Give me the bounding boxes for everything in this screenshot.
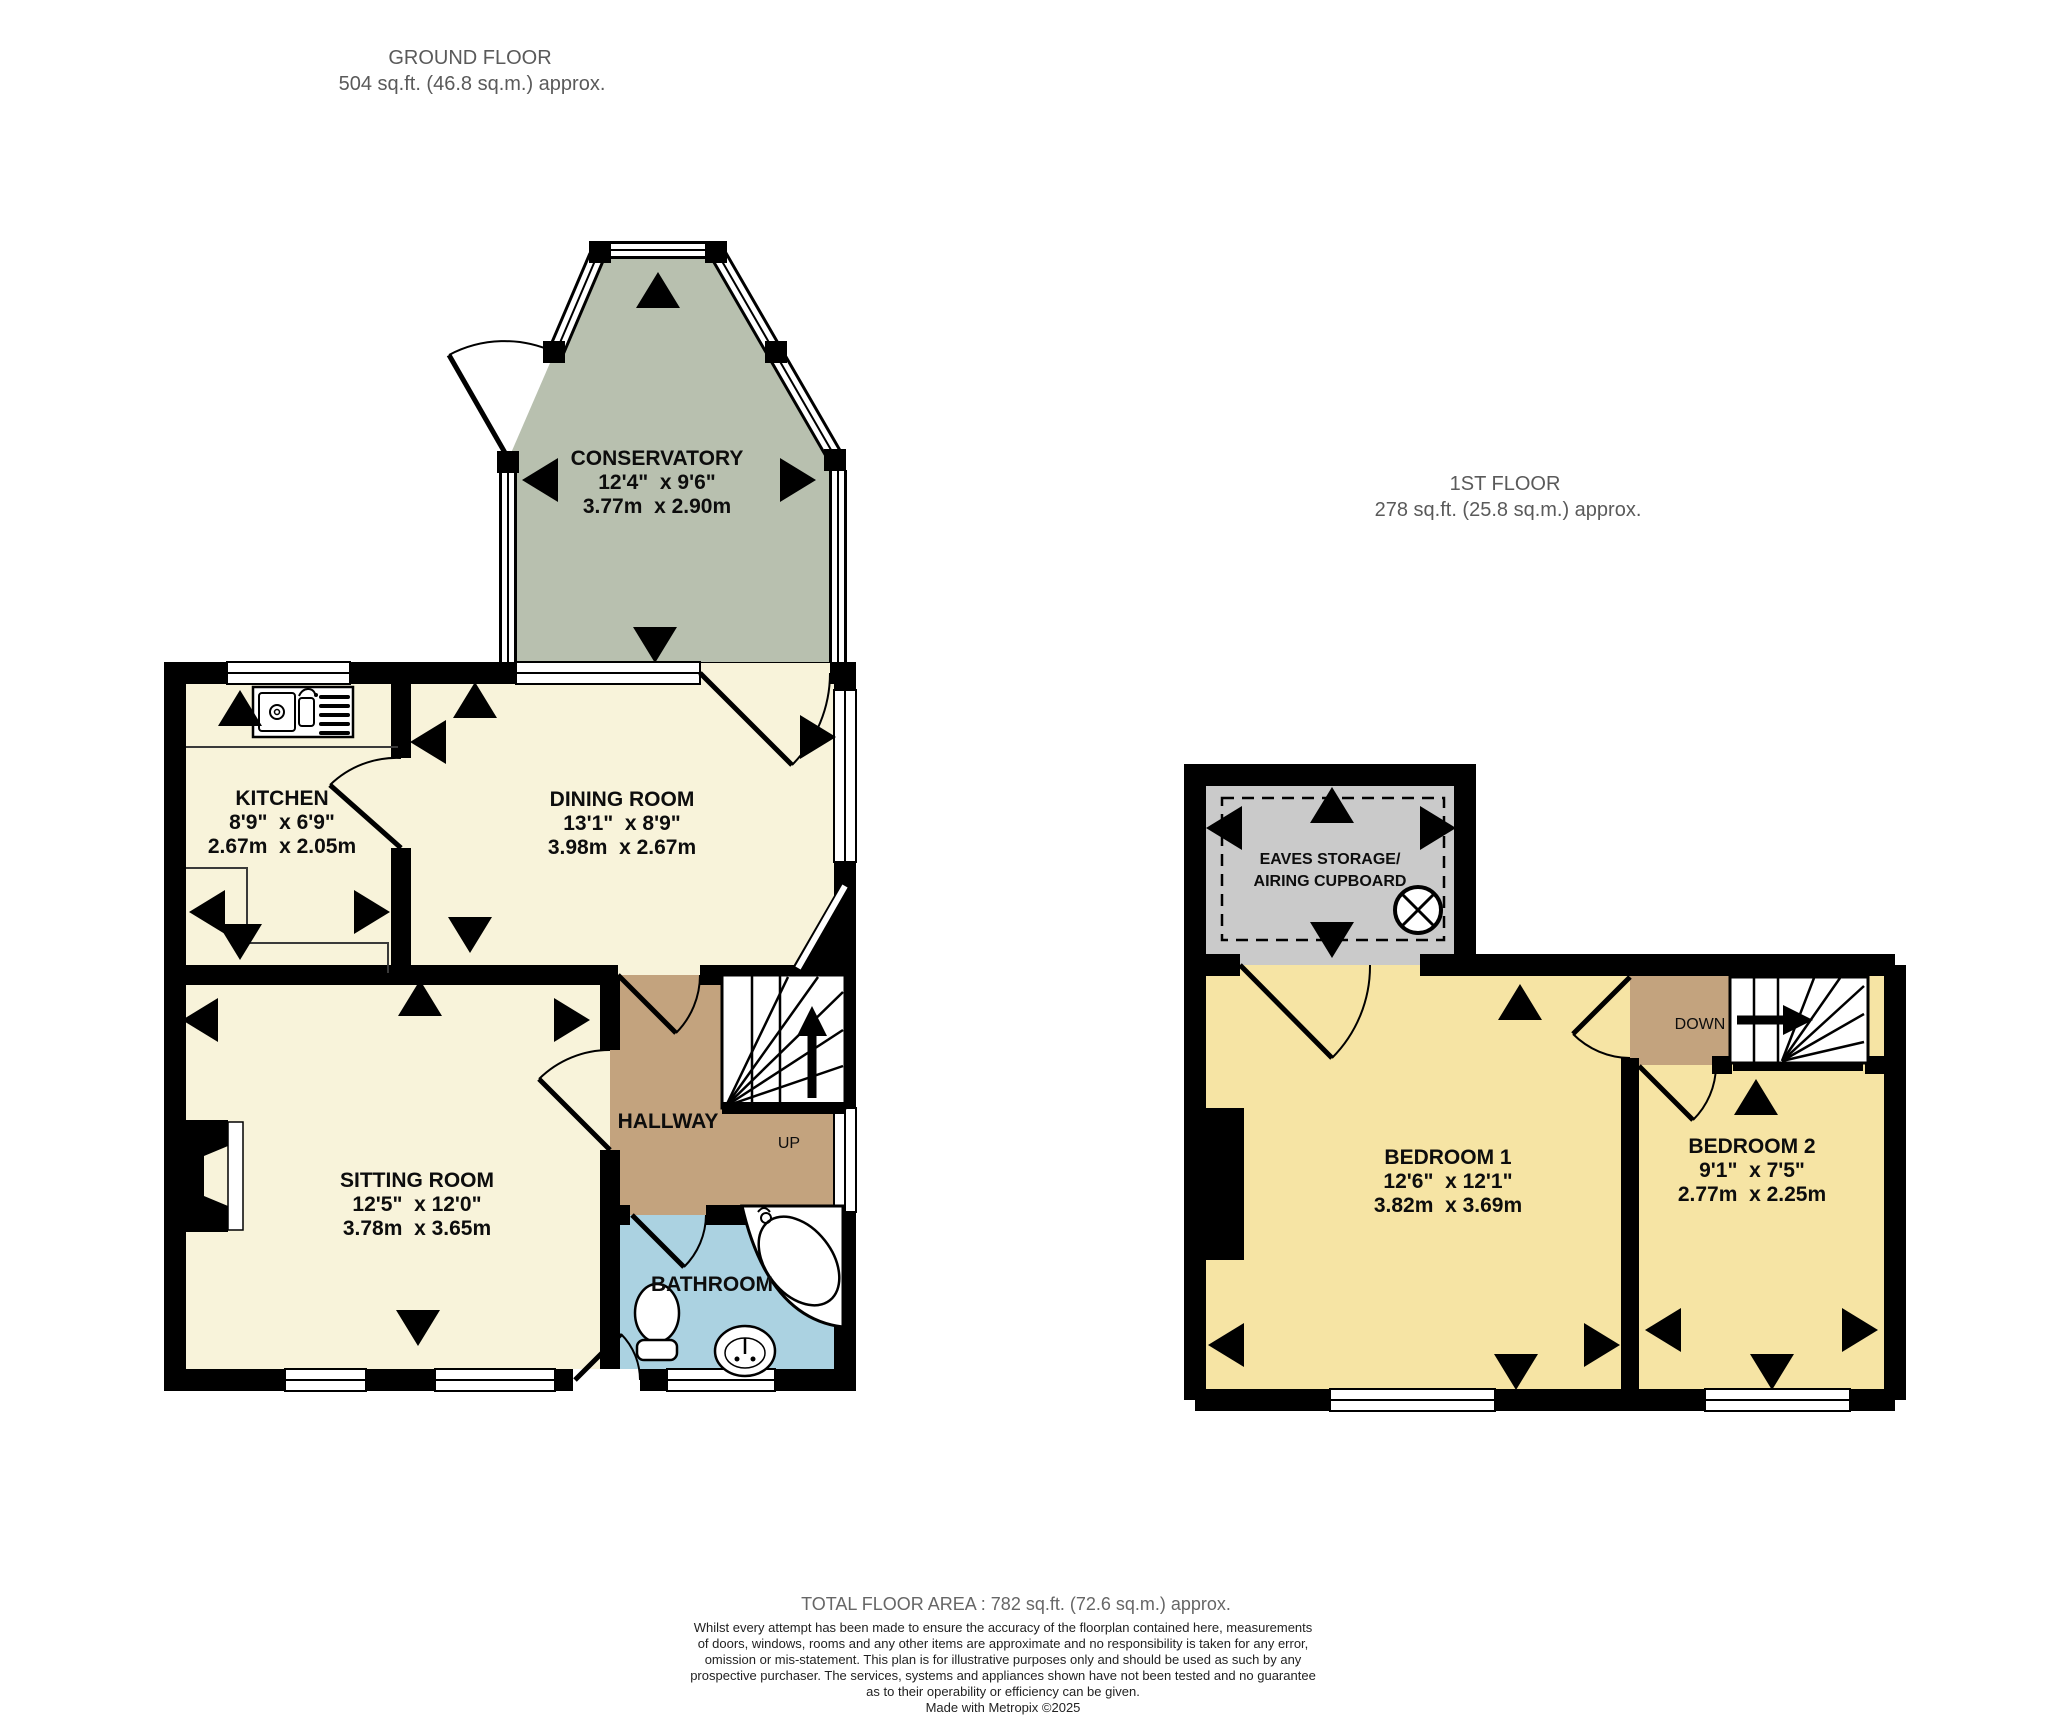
eaves-storage-label-1: EAVES STORAGE/ <box>1260 851 1401 868</box>
room-conservatory-metric: 3.77m x 2.90m <box>583 495 731 518</box>
stairs-down-label: DOWN <box>1675 1016 1726 1033</box>
stairs-up-label: UP <box>778 1135 800 1152</box>
kitchen-window <box>227 662 350 684</box>
disclaimer-line: prospective purchaser. The services, sys… <box>690 1668 1316 1683</box>
room-bedroom1-metric: 3.82m x 3.69m <box>1374 1194 1522 1217</box>
room-sitting-imperial: 12'5" x 12'0" <box>352 1193 481 1216</box>
bedroom1-window <box>1330 1389 1495 1411</box>
room-conservatory-name: CONSERVATORY <box>571 447 744 470</box>
conservatory-sill-window <box>516 662 700 684</box>
room-bedroom2-metric: 2.77m x 2.25m <box>1678 1183 1826 1206</box>
room-kitchen-imperial: 8'9" x 6'9" <box>229 811 335 834</box>
room-bedroom2-imperial: 9'1" x 7'5" <box>1699 1159 1805 1182</box>
room-dining-metric: 3.98m x 2.67m <box>548 836 696 859</box>
room-hallway-name: HALLWAY <box>618 1110 719 1133</box>
room-bedroom1-imperial: 12'6" x 12'1" <box>1383 1170 1512 1193</box>
first-floor-area: 278 sq.ft. (25.8 sq.m.) approx. <box>1375 499 1642 521</box>
stairs-window <box>834 1108 856 1212</box>
conservatory-opening <box>700 663 830 684</box>
disclaimer-line: omission or mis-statement. This plan is … <box>705 1652 1302 1667</box>
ff-floor-fills <box>1195 775 1895 1400</box>
disclaimer-line: Whilst every attempt has been made to en… <box>694 1620 1313 1635</box>
glazing-joint <box>705 241 727 263</box>
made-with-credit: Made with Metropix ©2025 <box>926 1700 1081 1715</box>
room-kitchen-name: KITCHEN <box>235 787 328 810</box>
first-floor-plan: EAVES STORAGE/ AIRING CUPBOARD BEDROOM 1… <box>1184 775 1895 1411</box>
disclaimer-line: of doors, windows, rooms and any other i… <box>698 1636 1309 1651</box>
room-bedroom2-name: BEDROOM 2 <box>1688 1135 1815 1158</box>
ground-floor-area: 504 sq.ft. (46.8 sq.m.) approx. <box>339 73 606 95</box>
floorplan-svg: CONSERVATORY 12'4" x 9'6" 3.77m x 2.90m … <box>0 0 2048 1715</box>
glazing-joint <box>824 449 846 471</box>
bedroom1-chimney <box>1184 1108 1244 1260</box>
bedroom2-window <box>1705 1389 1850 1411</box>
first-floor-title: 1ST FLOOR <box>1450 473 1561 495</box>
staircase-down <box>1730 977 1868 1063</box>
disclaimer-line: as to their operability or efficiency ca… <box>866 1684 1140 1699</box>
glazing-joint <box>589 241 611 263</box>
room-bathroom-name: BATHROOM <box>651 1273 773 1296</box>
floorplan-page: CONSERVATORY 12'4" x 9'6" 3.77m x 2.90m … <box>0 0 2048 1715</box>
room-kitchen-metric: 2.67m x 2.05m <box>208 835 356 858</box>
staircase-up <box>722 975 845 1108</box>
eaves-storage-label-2: AIRING CUPBOARD <box>1254 873 1407 890</box>
room-conservatory-imperial: 12'4" x 9'6" <box>598 471 715 494</box>
sitting-window-1 <box>285 1369 366 1391</box>
ground-floor-title: GROUND FLOOR <box>388 47 551 69</box>
dining-window <box>834 690 856 862</box>
total-floor-area: TOTAL FLOOR AREA : 782 sq.ft. (72.6 sq.m… <box>801 1594 1231 1614</box>
room-dining-name: DINING ROOM <box>550 788 695 811</box>
ground-floor-plan: CONSERVATORY 12'4" x 9'6" 3.77m x 2.90m … <box>175 241 856 1391</box>
kitchen-sink-icon <box>253 687 353 737</box>
sink-icon <box>715 1326 775 1376</box>
water-cylinder-icon <box>1395 887 1441 933</box>
room-sitting-name: SITTING ROOM <box>340 1169 494 1192</box>
room-sitting-metric: 3.78m x 3.65m <box>343 1217 491 1240</box>
room-bedroom1-name: BEDROOM 1 <box>1384 1146 1512 1169</box>
fireplace-hearth <box>228 1122 243 1230</box>
room-dining-imperial: 13'1" x 8'9" <box>563 812 680 835</box>
glazing-joint <box>765 341 787 363</box>
sitting-window-2 <box>435 1369 555 1391</box>
